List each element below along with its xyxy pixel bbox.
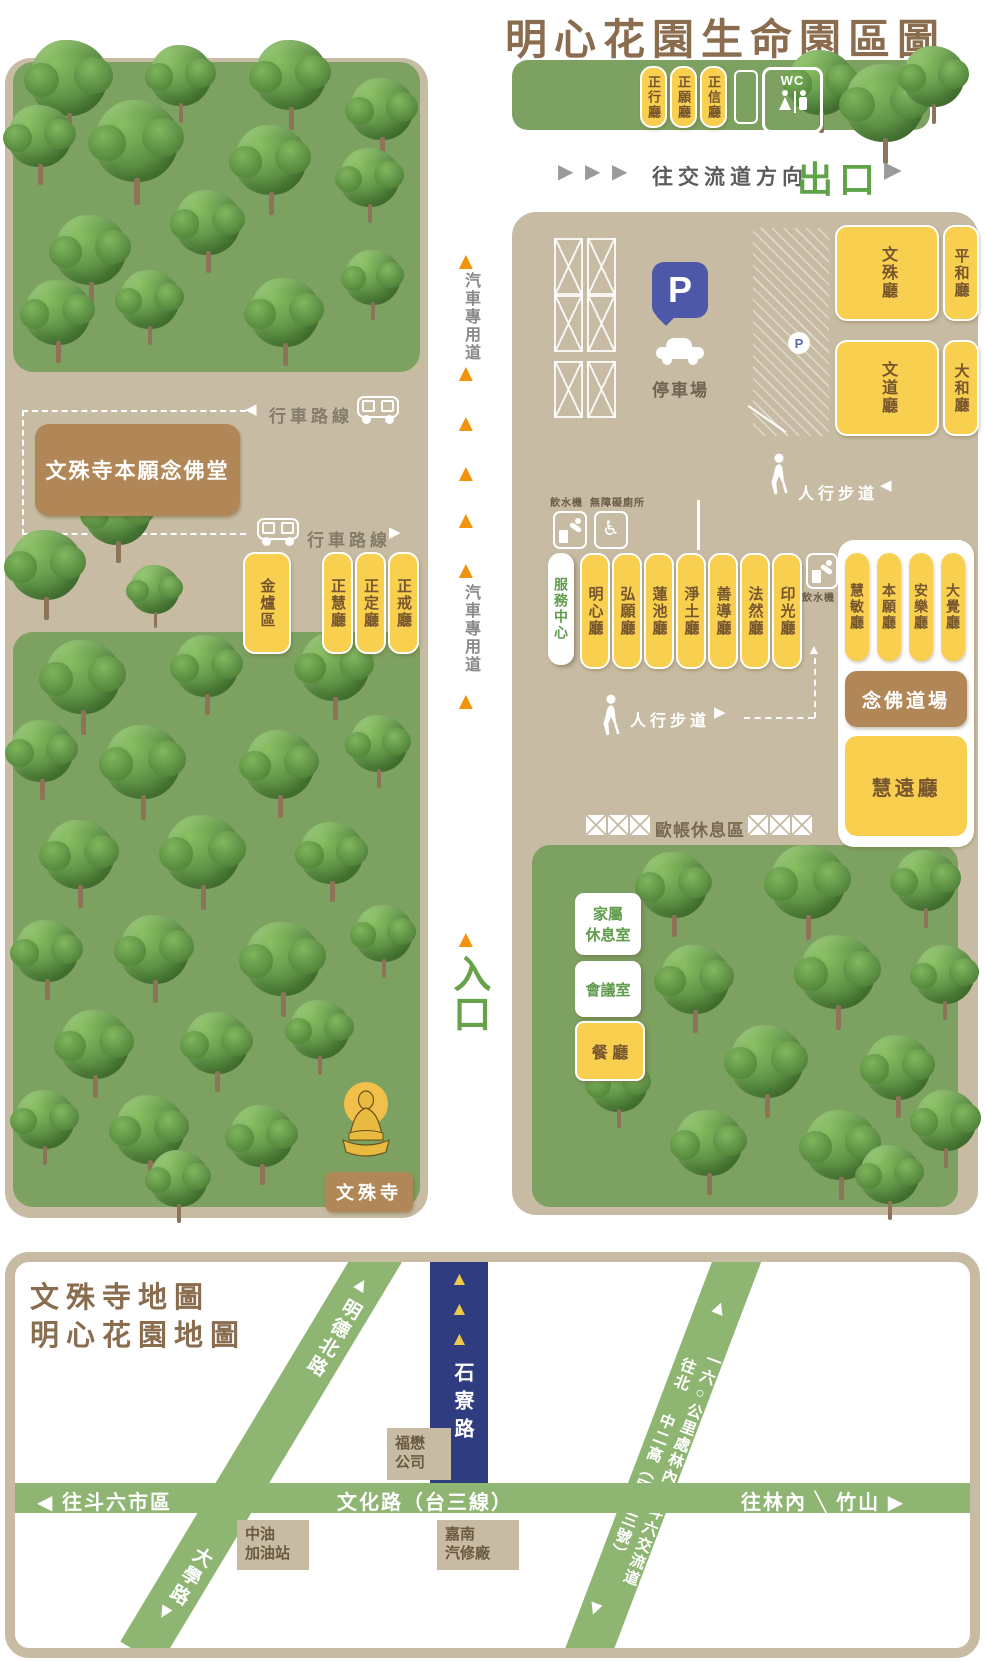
road-map-title-line2: 明心花園地圖 bbox=[30, 1312, 246, 1354]
route-arrow-icon: ◀ bbox=[245, 402, 257, 417]
road-direction-icon: ▲ bbox=[454, 462, 478, 486]
tree-icon bbox=[915, 1090, 977, 1168]
restroom-figures-icon bbox=[779, 90, 807, 113]
hall-jingtu: 淨土廳 bbox=[676, 553, 706, 669]
parking-lot-label: 停車場 bbox=[652, 376, 709, 401]
lane-divider bbox=[697, 500, 700, 550]
tree-icon bbox=[355, 905, 413, 978]
walkway-label: 人行步道 bbox=[630, 707, 710, 731]
jianan-auto-repair: 嘉南 汽修廠 bbox=[437, 1520, 519, 1570]
service-center: 服務中心 bbox=[548, 553, 574, 665]
small-parking-icon: P bbox=[788, 332, 810, 354]
hall-benyuan: 本願廳 bbox=[877, 553, 901, 661]
tree-icon bbox=[800, 935, 876, 1030]
road-arrow-icon: ▲ bbox=[450, 1300, 469, 1319]
walkway-dashed-path bbox=[814, 658, 816, 718]
parking-sign-letter: P bbox=[668, 269, 692, 311]
road-map-title-line1: 文殊寺地圖 bbox=[30, 1274, 210, 1316]
to-douliu-label: ◀ 往斗六市區 bbox=[37, 1486, 172, 1515]
access-road-map: 文殊寺地圖 明心花園地圖 ▲ 明德北路 大學路 ▼ ▲ 往北 中二高（國道三號）… bbox=[5, 1252, 980, 1658]
accessible-toilet-label: 無障礙廁所 bbox=[590, 494, 645, 509]
cpc-gas-station: 中油 加油站 bbox=[237, 1520, 309, 1570]
parking-sign-icon: P bbox=[652, 262, 708, 318]
hall-hongyuan: 弘願廳 bbox=[612, 553, 642, 669]
parking-stall bbox=[587, 295, 616, 352]
pedestrian-icon bbox=[766, 452, 792, 498]
tree-icon bbox=[290, 1000, 350, 1075]
parking-stall bbox=[587, 361, 616, 418]
tree-icon bbox=[150, 1150, 208, 1223]
car-icon bbox=[656, 338, 704, 366]
road-arrow-icon: ▲ bbox=[706, 1295, 732, 1321]
exit-arrow-icon: ▶ bbox=[585, 162, 600, 182]
hall-zhengxing: 正行廳 bbox=[640, 66, 667, 128]
parking-stall bbox=[554, 238, 583, 295]
exit-arrow-icon: ▶ bbox=[558, 162, 573, 182]
incinerator-area: 金爐區 bbox=[243, 552, 291, 654]
hall-zhengxing-label: 正行廳 bbox=[644, 75, 663, 120]
hall-dahe-label: 大和廳 bbox=[951, 363, 972, 414]
family-rest-room: 家屬 休息室 bbox=[575, 893, 641, 955]
tree-icon bbox=[120, 915, 190, 1003]
park-map-page: 明心花園生命園區圖 正行廳 正願廳 正信廳 WC ▶ ▶ ▶ 往交流道方向 出口… bbox=[0, 0, 985, 1661]
interchange-direction-label: 往交流道方向 bbox=[652, 161, 808, 191]
parking-stall bbox=[554, 295, 583, 352]
tree-icon bbox=[60, 1010, 130, 1098]
shiliao-road-label: 石寮路 bbox=[448, 1362, 477, 1446]
daxue-road-label: 大學路 bbox=[161, 1541, 218, 1611]
hall-pinghe-label: 平和廳 bbox=[951, 248, 972, 299]
tent-mark bbox=[608, 815, 628, 835]
water-fountain-label: 飲水機 bbox=[550, 494, 583, 509]
hall-wendao: 文道廳 bbox=[835, 340, 939, 436]
tree-icon bbox=[120, 270, 180, 345]
hall-huimin: 慧敏廳 bbox=[845, 553, 869, 661]
tree-icon bbox=[250, 278, 320, 366]
tree-icon bbox=[860, 1145, 920, 1220]
road-direction-icon: ▲ bbox=[454, 250, 478, 274]
road-arrow-icon: ▼ bbox=[582, 1596, 608, 1622]
tree-icon bbox=[130, 565, 180, 628]
tree-icon bbox=[175, 635, 239, 715]
parking-stall bbox=[554, 361, 583, 418]
hall-huiyuan: 慧遠廳 bbox=[845, 736, 967, 836]
pedestrian-icon bbox=[598, 693, 624, 739]
bus-icon bbox=[257, 518, 299, 546]
hall-zhenghui: 正慧廳 bbox=[322, 552, 353, 654]
hall-lianchi: 蓮池廳 bbox=[644, 553, 674, 669]
nembutsu-hall: 念佛道場 bbox=[845, 671, 967, 727]
hall-zhengding: 正定廳 bbox=[355, 552, 386, 654]
walkway-arrow-icon: ◀ bbox=[880, 478, 892, 493]
highway-road: ▲ 往北 中二高（國道三號） 一六○公里處林內 斗六交流道 ▼ bbox=[564, 1252, 763, 1658]
tree-icon bbox=[245, 730, 315, 818]
hall-mingxin: 明心廳 bbox=[580, 553, 610, 669]
hatched-zone bbox=[753, 228, 829, 436]
meeting-room: 會議室 bbox=[575, 961, 641, 1017]
fumao-company: 福懋 公司 bbox=[387, 1428, 451, 1480]
incinerator-label: 金爐區 bbox=[257, 578, 278, 629]
wc-restroom-icon: WC bbox=[762, 67, 823, 133]
exit-arrow-icon: ▶ bbox=[884, 158, 902, 181]
dining-room: 餐 廳 bbox=[575, 1021, 645, 1081]
driving-route-label: 行車路線 bbox=[269, 402, 353, 427]
tree-icon bbox=[10, 720, 74, 800]
road-arrow-icon: ▲ bbox=[450, 1270, 469, 1289]
tree-icon bbox=[675, 1110, 743, 1195]
walkway-arrow-icon: ▶ bbox=[714, 705, 726, 720]
hall-wendao-label: 文道廳 bbox=[875, 361, 899, 415]
tree-icon bbox=[185, 1012, 249, 1092]
tree-icon bbox=[235, 125, 307, 215]
to-linnei-zhushan-label: 往林內 ╲ 竹山 ▶ bbox=[741, 1486, 905, 1515]
tree-icon bbox=[15, 920, 79, 1000]
hall-anle: 安樂廳 bbox=[909, 553, 933, 661]
bus-icon bbox=[357, 396, 399, 424]
mingde-road-label: 明德北路 bbox=[298, 1293, 366, 1382]
tent-mark bbox=[630, 815, 650, 835]
main-worship-hall: 文殊寺本願念佛堂 bbox=[35, 424, 240, 516]
hall-wenshu-label: 文殊廳 bbox=[875, 246, 899, 300]
road-direction-icon: ▲ bbox=[454, 928, 478, 952]
road-arrow-icon: ▲ bbox=[450, 1330, 469, 1349]
exit-arrow-icon: ▶ bbox=[612, 162, 627, 182]
wc-label: WC bbox=[781, 74, 805, 87]
hall-zhengjie: 正戒廳 bbox=[388, 552, 419, 654]
tent-mark bbox=[748, 815, 768, 835]
tree-icon bbox=[903, 46, 965, 124]
water-fountain-icon bbox=[806, 553, 838, 589]
tree-icon bbox=[25, 280, 91, 363]
tree-icon bbox=[95, 100, 179, 205]
entrance-label: 入口 bbox=[446, 954, 488, 1034]
parking-stall bbox=[587, 238, 616, 295]
vehicle-road-label: 汽車專用道 bbox=[458, 584, 482, 674]
tree-icon bbox=[230, 1105, 294, 1185]
road-direction-icon: ▲ bbox=[454, 362, 478, 386]
tree-icon bbox=[350, 715, 408, 788]
hall-zhengxin-label: 正信廳 bbox=[704, 75, 723, 120]
hall-yinguang: 印光廳 bbox=[772, 553, 802, 669]
tree-icon bbox=[345, 250, 401, 320]
road-direction-icon: ▲ bbox=[454, 509, 478, 533]
road-direction-icon: ▲ bbox=[454, 690, 478, 714]
tree-icon bbox=[10, 530, 82, 620]
empty-slot-box bbox=[734, 70, 758, 124]
hall-zhengyuan: 正願廳 bbox=[670, 66, 697, 128]
driving-route-label: 行車路線 bbox=[307, 526, 391, 551]
walkway-arrow-icon: ▲ bbox=[807, 642, 821, 656]
tree-icon bbox=[105, 725, 181, 820]
tree-icon bbox=[15, 1090, 75, 1165]
hall-faran: 法然廳 bbox=[740, 553, 770, 669]
tree-icon bbox=[770, 845, 846, 940]
hall-zhengxin: 正信廳 bbox=[700, 66, 727, 128]
tree-icon bbox=[340, 148, 400, 223]
temple-label: 文殊寺 bbox=[336, 1179, 402, 1205]
tree-icon bbox=[255, 40, 327, 130]
hall-zhengding-label: 正定廳 bbox=[360, 578, 381, 629]
wenhua-road-label: 文化路（台三線） bbox=[337, 1486, 513, 1515]
buddha-statue-icon bbox=[335, 1078, 397, 1174]
tree-icon bbox=[45, 820, 115, 908]
tree-icon bbox=[350, 78, 414, 158]
water-fountain-icon bbox=[553, 511, 587, 549]
service-center-label: 服務中心 bbox=[551, 577, 571, 641]
route-arrow-icon: ▶ bbox=[389, 525, 401, 540]
road-direction-icon: ▲ bbox=[454, 559, 478, 583]
tree-icon bbox=[895, 850, 957, 928]
hall-shandao: 善導廳 bbox=[708, 553, 738, 669]
tree-icon bbox=[660, 945, 730, 1033]
tree-icon bbox=[915, 945, 975, 1020]
tent-mark bbox=[586, 815, 606, 835]
tree-icon bbox=[640, 852, 708, 937]
tree-icon bbox=[300, 822, 364, 902]
hall-dajue: 大覺廳 bbox=[941, 553, 965, 661]
hall-dahe: 大和廳 bbox=[943, 340, 979, 436]
tree-icon bbox=[165, 815, 241, 910]
walkway-dashed-path bbox=[744, 717, 814, 719]
hall-zhengjie-label: 正戒廳 bbox=[393, 578, 414, 629]
temple-label-box: 文殊寺 bbox=[325, 1172, 413, 1212]
road-direction-icon: ▲ bbox=[454, 412, 478, 436]
vehicle-road-label: 汽車專用道 bbox=[458, 272, 482, 362]
road-arrow-icon: ▲ bbox=[348, 1271, 375, 1298]
walkway-label: 人行步道 bbox=[798, 480, 878, 504]
water-fountain-label: 飲水機 bbox=[802, 589, 835, 604]
tent-mark bbox=[770, 815, 790, 835]
tent-rest-area-label: 歐帳休息區 bbox=[655, 816, 745, 841]
page-title: 明心花園生命園區圖 bbox=[505, 6, 946, 67]
hall-wenshu: 文殊廳 bbox=[835, 225, 939, 321]
hall-pinghe: 平和廳 bbox=[943, 225, 979, 321]
tent-mark bbox=[792, 815, 812, 835]
main-worship-hall-label: 文殊寺本願念佛堂 bbox=[46, 455, 230, 485]
east-hall-block: 慧敏廳 本願廳 安樂廳 大覺廳 念佛道場 慧遠廳 bbox=[838, 540, 974, 847]
tree-icon bbox=[730, 1025, 804, 1118]
accessible-toilet-icon: ♿ bbox=[594, 511, 628, 549]
hall-zhengyuan-label: 正願廳 bbox=[674, 75, 693, 120]
tree-icon bbox=[175, 190, 241, 273]
tree-icon bbox=[8, 105, 72, 185]
hall-zhenghui-label: 正慧廳 bbox=[327, 578, 348, 629]
